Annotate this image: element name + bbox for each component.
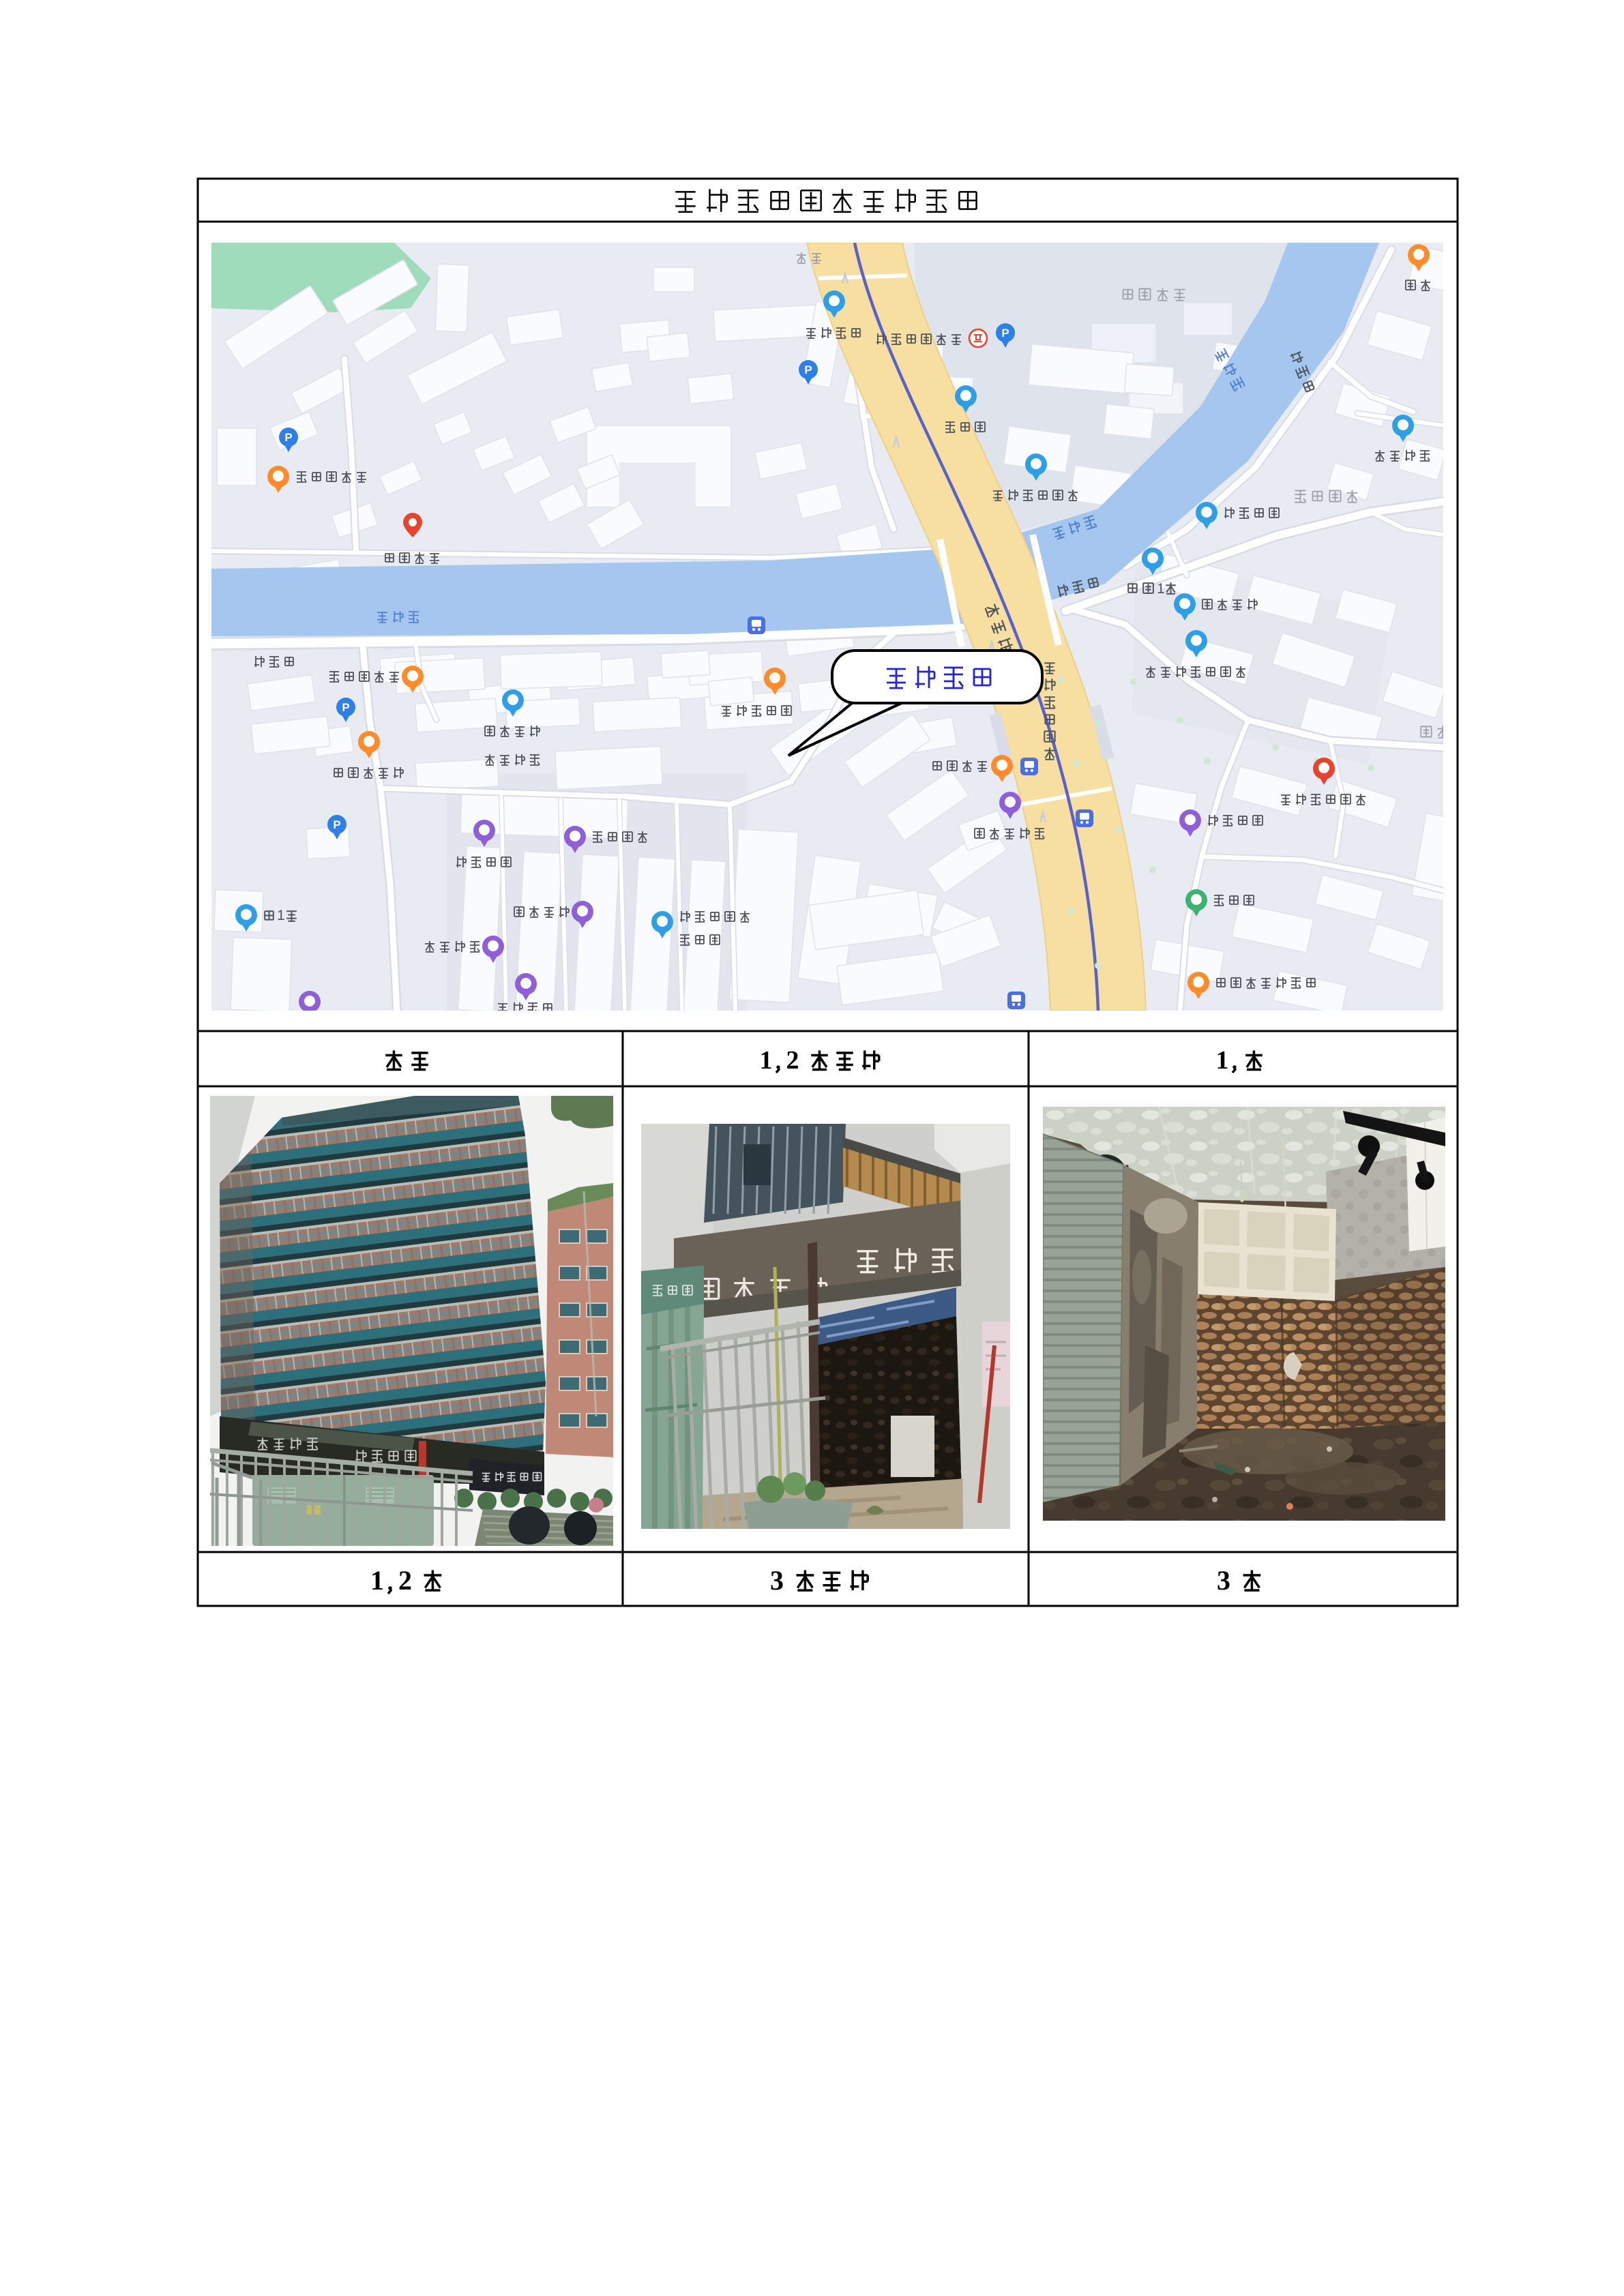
- svg-text:P: P: [1001, 327, 1009, 340]
- svg-text:3: 3: [770, 1565, 784, 1596]
- svg-text:1: 1: [370, 1565, 384, 1596]
- svg-text:1: 1: [1157, 581, 1165, 597]
- svg-text:2: 2: [398, 1565, 412, 1596]
- svg-text:3: 3: [1217, 1565, 1230, 1596]
- svg-text:P: P: [284, 431, 292, 444]
- svg-text:1: 1: [760, 1046, 773, 1075]
- svg-text:P: P: [342, 701, 349, 714]
- svg-text:1: 1: [277, 908, 285, 923]
- svg-text:2: 2: [786, 1046, 799, 1075]
- svg-text:1: 1: [1216, 1046, 1229, 1075]
- svg-text:P: P: [804, 363, 812, 376]
- svg-text:P: P: [333, 818, 340, 831]
